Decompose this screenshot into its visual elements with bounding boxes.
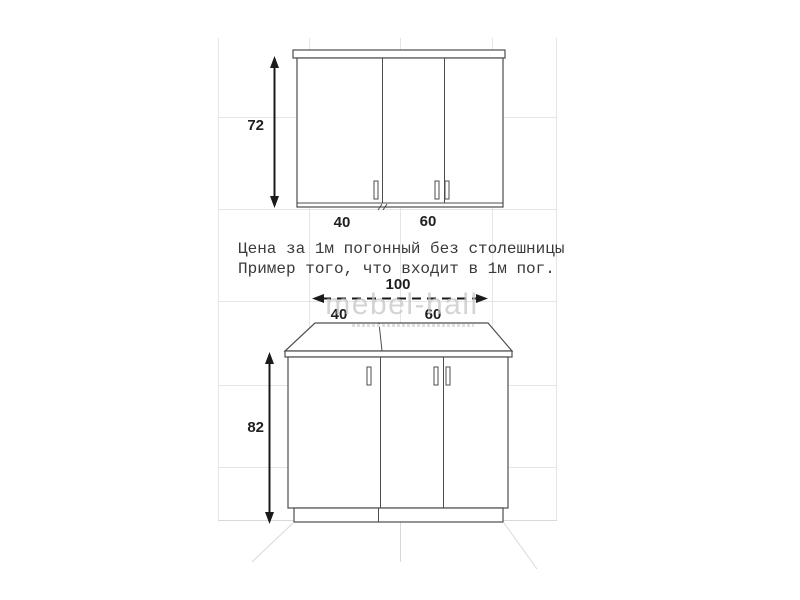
door-handle	[445, 181, 449, 199]
upper-height-label: 72	[247, 117, 264, 134]
upper-cabinet-body	[297, 58, 503, 207]
lower-height-dimension: 82	[247, 352, 274, 524]
countertop-surface	[285, 323, 512, 351]
lower-cabinet-drawing	[285, 323, 512, 522]
plinth-board	[294, 508, 503, 522]
door-handle	[434, 367, 438, 385]
countertop-front-edge	[285, 351, 512, 357]
upper-right-door-width-label: 60	[420, 213, 437, 230]
arrowhead-down-icon	[265, 512, 274, 524]
caption-line-1: Цена за 1м погонный без столешницы	[238, 240, 564, 258]
lower-cabinet-body	[288, 357, 508, 508]
floor-tile-line	[252, 523, 293, 562]
kitchen-dimensions-diagram: 72 40 60 Цена за 1м погонный без столешн…	[0, 0, 800, 600]
door-handle	[374, 181, 378, 199]
arrowhead-up-icon	[270, 56, 279, 68]
watermark-text: mebel-hall	[325, 288, 478, 321]
upper-height-dimension: 72	[247, 56, 279, 208]
upper-left-door-width-label: 40	[334, 214, 351, 231]
door-handle	[435, 181, 439, 199]
lower-height-label: 82	[247, 419, 264, 436]
door-handle	[446, 367, 450, 385]
door-handle	[367, 367, 371, 385]
diagram-canvas: 72 40 60 Цена за 1м погонный без столешн…	[0, 0, 800, 600]
upper-cabinet-top-board	[293, 50, 505, 58]
upper-cabinet-drawing	[293, 50, 505, 210]
arrowhead-down-icon	[270, 196, 279, 208]
floor-tile-line	[504, 523, 537, 569]
arrowhead-up-icon	[265, 352, 274, 364]
floor-perspective-lines	[252, 522, 537, 569]
